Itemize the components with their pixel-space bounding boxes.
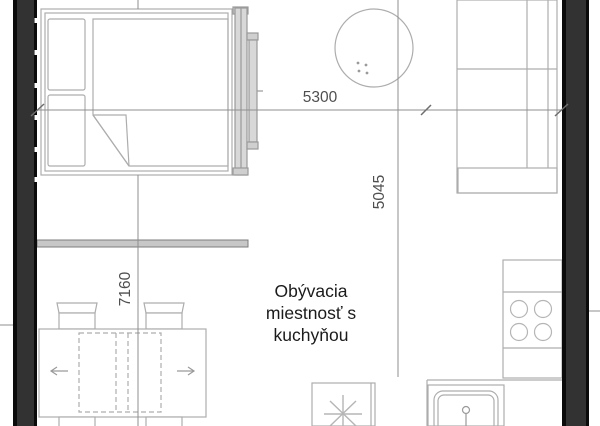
left-wall: [13, 0, 37, 426]
sofa: [457, 0, 557, 193]
tv-board: [37, 240, 248, 247]
dim-label-7160: 7160: [117, 271, 134, 306]
bed: [41, 9, 232, 175]
chair-bottom-left: [59, 417, 95, 426]
dim-label-5045: 5045: [371, 175, 388, 209]
dim-label-5300: 5300: [303, 89, 338, 106]
right-wall: [562, 0, 589, 426]
room-label: Obývacia miestnosť s kuchyňou: [266, 281, 356, 345]
dining-table: [39, 329, 206, 417]
tv-screen: [249, 40, 257, 142]
chair-bottom-right: [146, 417, 182, 426]
room-label-line1: Obývacia: [275, 281, 348, 301]
floorplan-drawing: 5300 5045 7160 Obývacia miestnosť s kuch…: [0, 0, 600, 426]
chair-top-left: [57, 303, 97, 329]
room-label-line2: miestnosť s: [266, 303, 356, 323]
room-label-line3: kuchyňou: [274, 325, 349, 345]
chair-top-right: [144, 303, 184, 329]
floorplan-canvas: 5300 5045 7160 Obývacia miestnosť s kuch…: [0, 0, 600, 426]
